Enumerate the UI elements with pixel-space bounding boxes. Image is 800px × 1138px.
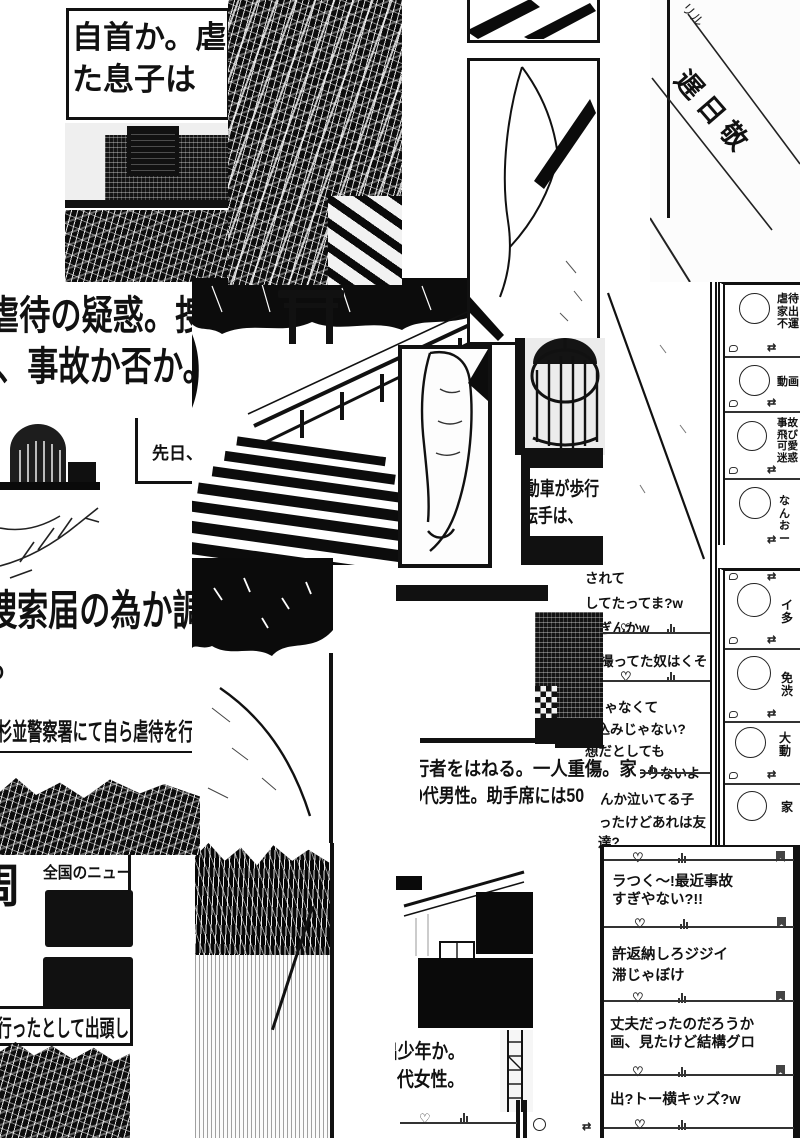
feed-post[interactable]: なん おー (779, 495, 800, 545)
post-divider (600, 632, 710, 634)
manga-collage-page: 虐待の疑惑。捜 、事故か否か。 捜索届の為か調 。 杉並警察署にて自ら虐待を行 … (0, 0, 800, 1138)
forest-band-art (0, 778, 200, 855)
sns-feed-bottom: ♡ ラつく〜!最近事故 すぎやない?!! ♡ 許返納しろジジイ 滞じゃぼけ ♡ … (600, 845, 800, 1138)
headline-text: 行者をはねる。一人重傷。家 (420, 758, 636, 781)
headline-text: 。 (0, 636, 23, 685)
sns-feed-right-mid: ⇄ イ 多 ⇄ 免 渋 ⇄ 大 動 ⇄ 家 (718, 568, 800, 845)
panel-border-bar (523, 1100, 527, 1138)
reply-icon[interactable] (729, 400, 738, 407)
post-divider (604, 1074, 794, 1076)
stats-icon[interactable] (678, 852, 686, 863)
post-divider (400, 1122, 517, 1124)
cliff-bush-panel-art (192, 558, 333, 843)
headline-runaway: 出少年か。 代女性。 (395, 1040, 500, 1096)
reply-icon[interactable] (729, 573, 738, 580)
finger-panel-art (398, 345, 492, 568)
feed-post[interactable]: 出?トー横キッズ?w (610, 1091, 741, 1109)
rule-under-caption (0, 751, 214, 753)
like-icon[interactable]: ♡ (632, 851, 644, 864)
retweet-icon[interactable]: ⇄ (767, 709, 776, 720)
city-building-panel-art (65, 123, 228, 208)
feed-post[interactable]: 動画 (777, 376, 799, 389)
building-sketch-art (0, 418, 100, 490)
panel-border-line (710, 282, 712, 845)
city-photo-panel-art (535, 612, 603, 748)
retweet-icon[interactable]: ⇄ (767, 343, 776, 354)
post-divider (725, 478, 800, 480)
accident-news-strip: 行者をはねる。一人重傷。家 60代男性。助手席には50 (420, 736, 642, 835)
feed-post[interactable]: 虐待 家出 不運 (777, 293, 799, 331)
post-divider (604, 1000, 794, 1002)
feed-post[interactable]: ラつく〜!最近事故 すぎやない?!! (612, 873, 733, 909)
caption-text: 杉並警察署にて自ら虐待を行 (0, 718, 194, 747)
forest-panel-art (228, 0, 402, 285)
partial-kanji: 周 (0, 858, 26, 912)
post-divider (725, 411, 800, 413)
avatar[interactable] (739, 365, 770, 396)
like-icon[interactable]: ♡ (634, 1118, 646, 1131)
like-icon[interactable]: ♡ (632, 1065, 644, 1078)
tilted-note-panel: 遅日敬 リル (650, 0, 800, 282)
retweet-icon[interactable]: ⇄ (767, 770, 776, 781)
post-divider (725, 356, 800, 358)
black-panel-fragment (396, 585, 548, 601)
panel-border-bar (793, 847, 800, 1138)
retweet-icon[interactable]: ⇄ (582, 1122, 591, 1133)
avatar[interactable] (737, 583, 771, 617)
house-panel-art (396, 858, 533, 1030)
trees-band-art (65, 210, 228, 282)
like-icon[interactable]: ♡ (634, 917, 646, 930)
post-divider (600, 680, 710, 682)
headline-search-report: 捜索届の為か調 。 (0, 585, 218, 685)
corner-tree-art (0, 1042, 130, 1138)
caption-box-turned-in: 行ったとして出頭し (0, 1006, 133, 1046)
avatar[interactable] (739, 487, 771, 519)
redacted-block (43, 957, 133, 1011)
streak-panel-art (467, 0, 600, 43)
post-divider (604, 859, 794, 861)
branch-sketch-art (0, 488, 125, 588)
birdcage-panel-art (515, 338, 605, 455)
feed-post[interactable]: 丈夫だったのだろうか 画、見たけど結構グロ (610, 1016, 755, 1052)
reply-icon[interactable] (729, 637, 738, 644)
panel-border-bar (516, 1100, 520, 1138)
feed-post[interactable]: 免 渋 (781, 672, 793, 698)
avatar[interactable] (737, 791, 767, 821)
redacted-block (45, 890, 133, 947)
post-divider (725, 721, 800, 723)
retweet-icon[interactable]: ⇄ (767, 398, 776, 409)
headline-text: 、事故か否か。 (0, 343, 214, 392)
feed-post[interactable]: イ 多 (781, 599, 793, 625)
reply-icon[interactable] (729, 467, 738, 474)
caption-national-news: 全国のニュー (43, 864, 139, 884)
feed-post[interactable]: 許返納しろジジイ 滞じゃぼけ (612, 946, 728, 985)
retweet-icon[interactable]: ⇄ (767, 572, 776, 583)
reply-icon[interactable] (729, 711, 738, 718)
post-divider (725, 783, 800, 785)
caption-car-box: 動車が歩行 転手は、 (521, 448, 603, 565)
avatar[interactable] (737, 656, 771, 690)
feed-post[interactable]: 事故 飛び 可愛 迷惑 (777, 418, 798, 464)
avatar[interactable] (737, 421, 767, 451)
caption-police-station: 杉並警察署にて自ら虐待を行 (0, 718, 216, 750)
like-icon[interactable]: ♡ (632, 991, 644, 1004)
post-divider (604, 926, 794, 928)
headline-surrender-box: 自首か。虐 た息子は (66, 8, 230, 120)
sns-feed-right-top: 虐待 家出 不運 ⇄ 動画 ⇄ 事故 飛び 可愛 迷惑 ⇄ なん おー ⇄ (718, 282, 800, 545)
reply-icon[interactable] (729, 345, 738, 352)
headline-suspicion: 虐待の疑惑。捜 、事故か否か。 (0, 292, 215, 402)
retweet-icon[interactable]: ⇄ (767, 635, 776, 646)
avatar[interactable] (739, 293, 770, 324)
avatar[interactable] (735, 727, 766, 758)
retweet-icon[interactable]: ⇄ (767, 465, 776, 476)
avatar[interactable] (533, 1118, 546, 1131)
retweet-icon[interactable]: ⇄ (767, 535, 776, 546)
grass-wall-panel-art (195, 843, 334, 1138)
headline-text: 60代男性。助手席には50 (420, 785, 584, 808)
post-divider (725, 648, 800, 650)
feed-post[interactable]: 家 (781, 801, 793, 814)
panel-border-line (715, 282, 717, 845)
reply-icon[interactable] (729, 772, 738, 779)
comment-post[interactable]: 撮ってた奴はくそ (600, 650, 707, 670)
headline-text: 虐待の疑惑。捜 (0, 292, 206, 341)
rock-panel-art (467, 58, 600, 345)
headline-text: 捜索届の為か調 (0, 585, 204, 636)
feed-post[interactable]: 大 動 (779, 732, 791, 758)
tilted-panel-art (600, 285, 712, 565)
post-divider (604, 1127, 794, 1129)
